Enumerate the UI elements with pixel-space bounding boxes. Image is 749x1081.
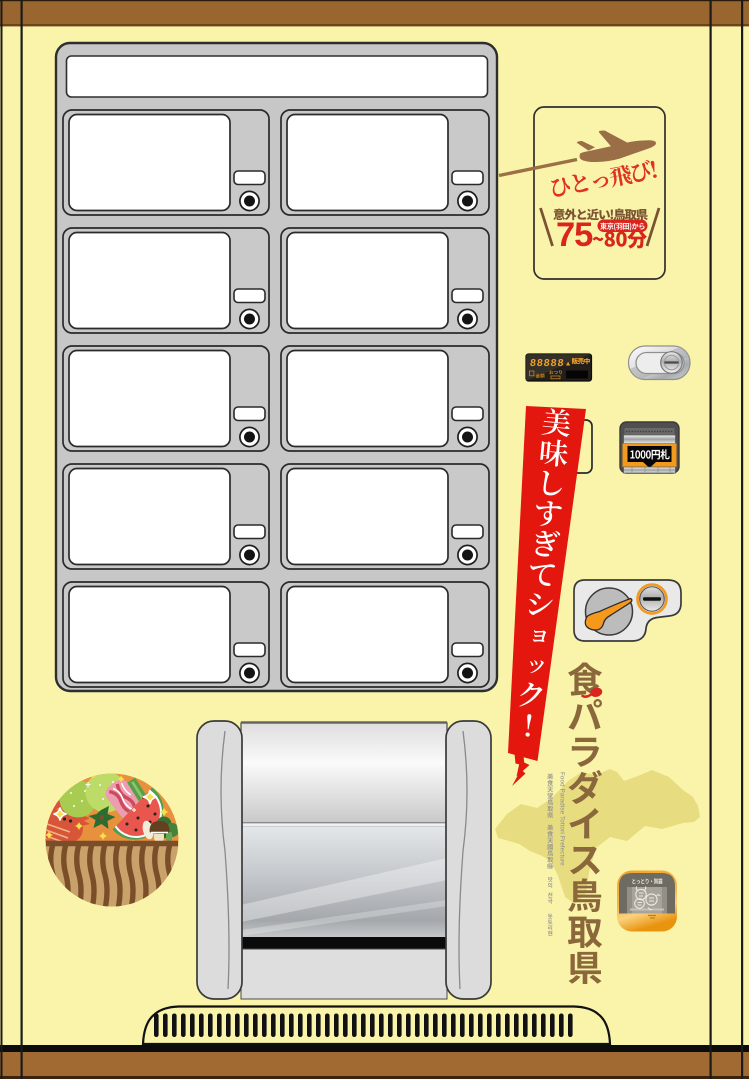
svg-text:75: 75	[556, 216, 593, 254]
svg-text:88888: 88888	[529, 358, 565, 370]
svg-text:Food Paradise Tottori Prefectu: Food Paradise Tottori Prefecture	[559, 772, 566, 866]
